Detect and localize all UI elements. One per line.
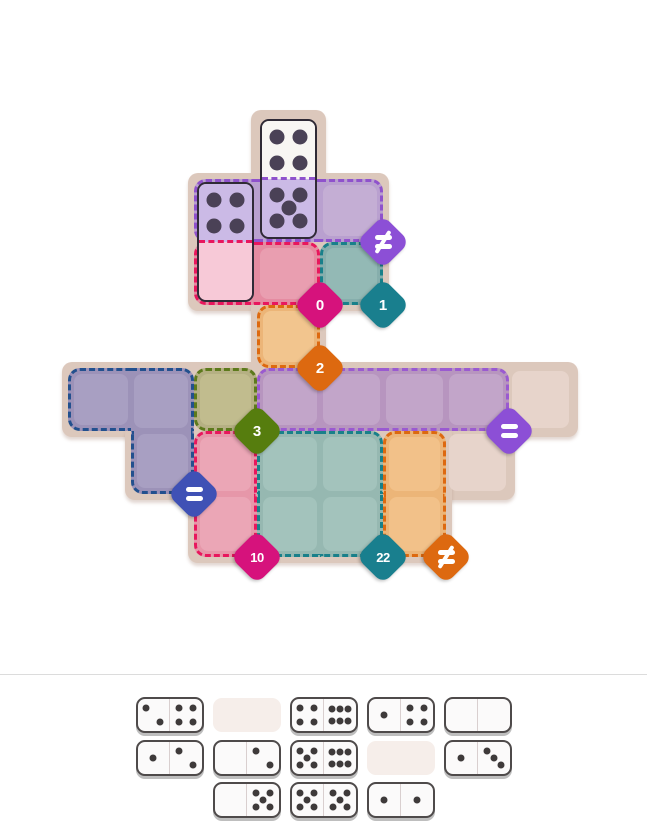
tray-domino-half: [446, 742, 479, 774]
region-purple-band-cell[interactable]: [383, 368, 446, 431]
placed-domino-half: [262, 121, 315, 179]
placed-domino-half: [199, 184, 252, 242]
pip-dot: [252, 804, 259, 811]
constraint-badge-label: [490, 412, 528, 450]
pip-dot: [420, 704, 427, 711]
pip-dot: [252, 747, 259, 754]
tray-domino-half: [292, 742, 325, 774]
game-page: 01231022: [0, 0, 647, 830]
pip-dot: [304, 755, 311, 762]
pip-dot: [293, 130, 308, 145]
pip-dot: [406, 704, 413, 711]
pip-dot: [206, 218, 221, 233]
pip-dot: [269, 155, 284, 170]
tray-domino-half: [324, 742, 356, 774]
pip-dot: [328, 705, 335, 712]
pip-dot: [329, 789, 336, 796]
region-cell-surface: [386, 374, 443, 425]
not-equal-slash-icon: [374, 230, 391, 254]
tray-domino-1-1[interactable]: [367, 782, 435, 818]
pip-dot: [281, 201, 296, 216]
pip-dot: [230, 218, 245, 233]
tray-domino-half: [170, 699, 202, 731]
tray-domino-half: [324, 784, 356, 816]
equals-bar: [501, 433, 518, 438]
pip-dot: [297, 704, 304, 711]
tray-domino-half: [369, 784, 402, 816]
tray-domino-half: [170, 742, 202, 774]
pip-dot: [311, 719, 318, 726]
pip-dot: [420, 719, 427, 726]
equals-bar: [186, 487, 203, 492]
pip-dot: [490, 755, 497, 762]
tray-domino-half: [247, 742, 279, 774]
pip-dot: [497, 762, 504, 769]
constraint-badge-label: 10: [238, 538, 276, 576]
constraint-badge-10: 10: [230, 530, 284, 584]
pip-dot: [406, 719, 413, 726]
pip-dot: [269, 188, 284, 203]
region-cell-surface: [389, 437, 440, 491]
pip-dot: [293, 155, 308, 170]
pip-dot: [293, 213, 308, 228]
pip-dot: [269, 130, 284, 145]
tray-domino-half: [478, 699, 510, 731]
tray-domino-half: [401, 699, 433, 731]
pip-dot: [150, 755, 157, 762]
pip-dot: [269, 213, 284, 228]
pip-dot: [328, 761, 335, 768]
tray-domino-half: [215, 742, 248, 774]
equals-bar: [501, 424, 518, 429]
constraint-badge-22: 22: [356, 530, 410, 584]
placed-domino-half: [262, 179, 315, 237]
tray-domino-half: [215, 784, 248, 816]
placed-domino[interactable]: [260, 119, 317, 239]
pip-dot: [483, 747, 490, 754]
pip-dot: [297, 804, 304, 811]
tray-domino-5-6[interactable]: [290, 740, 358, 776]
pip-dot: [266, 762, 273, 769]
constraint-badge-label: [175, 475, 213, 513]
tray-slot-empty: [367, 741, 435, 775]
constraint-badge-label: 22: [364, 538, 402, 576]
tray-domino-half: [478, 742, 510, 774]
pip-dot: [336, 761, 343, 768]
pip-dot: [343, 804, 350, 811]
pip-dot: [336, 748, 343, 755]
placed-domino[interactable]: [197, 182, 254, 302]
tray-domino-half: [138, 699, 171, 731]
constraint-badge-label: [427, 538, 465, 576]
tray-row: [136, 697, 512, 733]
pip-dot: [343, 789, 350, 796]
constraint-badge-label: 3: [238, 412, 276, 450]
pip-dot: [143, 704, 150, 711]
tray-separator-line: [0, 674, 647, 675]
tray-domino-half: [446, 699, 479, 731]
not-equal-slash-icon: [437, 545, 454, 569]
tray-domino-1-3[interactable]: [444, 740, 512, 776]
pip-dot: [189, 762, 196, 769]
pip-dot: [381, 797, 388, 804]
tray-domino-4-6[interactable]: [290, 697, 358, 733]
tray-domino-half: [292, 699, 325, 731]
pip-dot: [336, 705, 343, 712]
region-cell-surface: [134, 374, 188, 428]
equals-bar: [186, 496, 203, 501]
constraint-badge-eq: [167, 467, 221, 521]
pip-dot: [344, 761, 351, 768]
constraint-badge-label: 1: [364, 286, 402, 324]
tray-domino-0-0[interactable]: [444, 697, 512, 733]
tray-domino-half: [138, 742, 171, 774]
pip-dot: [328, 748, 335, 755]
tray-domino-1-4[interactable]: [367, 697, 435, 733]
pip-dot: [175, 747, 182, 754]
pip-dot: [381, 712, 388, 719]
pip-dot: [293, 188, 308, 203]
pip-dot: [297, 789, 304, 796]
region-navy-cell[interactable]: [131, 368, 194, 431]
pip-dot: [175, 704, 182, 711]
pip-dot: [344, 748, 351, 755]
tray-domino-0-5[interactable]: [213, 782, 281, 818]
region-boundary-dash: [262, 177, 315, 180]
tray-domino-half: [401, 784, 433, 816]
tray-domino-0-2[interactable]: [213, 740, 281, 776]
pip-dot: [304, 797, 311, 804]
pip-dot: [189, 719, 196, 726]
constraint-badge-1: 1: [356, 278, 410, 332]
tray-domino-half: [247, 784, 279, 816]
constraint-badge-label: 2: [301, 349, 339, 387]
pip-dot: [344, 705, 351, 712]
region-cell-surface: [323, 437, 377, 491]
pip-dot: [206, 193, 221, 208]
region-orange-low-cell[interactable]: [383, 431, 446, 494]
pip-dot: [311, 704, 318, 711]
constraint-badge-label: 0: [301, 286, 339, 324]
pip-dot: [230, 193, 245, 208]
pip-dot: [336, 718, 343, 725]
pip-dot: [259, 797, 266, 804]
pip-dot: [344, 718, 351, 725]
pip-dot: [266, 804, 273, 811]
constraint-badge-label: [364, 223, 402, 261]
tray-domino-half: [324, 699, 356, 731]
pip-dot: [175, 719, 182, 726]
tray-domino-5-5[interactable]: [290, 782, 358, 818]
tray-domino-half: [292, 784, 325, 816]
pip-dot: [311, 762, 318, 769]
pip-dot: [413, 797, 420, 804]
tray-domino-half: [369, 699, 402, 731]
pip-dot: [329, 804, 336, 811]
region-navy-cell[interactable]: [68, 368, 131, 431]
tray-slot-empty: [213, 698, 281, 732]
constraint-badge-eq: [482, 404, 536, 458]
pip-dot: [266, 789, 273, 796]
pip-dot: [336, 797, 343, 804]
pip-dot: [458, 755, 465, 762]
tray-domino-2-4[interactable]: [136, 697, 204, 733]
tray-row: [136, 740, 512, 776]
pip-dot: [297, 747, 304, 754]
region-teal-low-cell[interactable]: [320, 431, 383, 494]
pip-dot: [311, 804, 318, 811]
constraint-badge-3: 3: [230, 404, 284, 458]
pip-dot: [157, 719, 164, 726]
pip-dot: [252, 789, 259, 796]
region-boundary-dash: [199, 240, 252, 243]
constraint-badge-neq: [356, 215, 410, 269]
pip-dot: [311, 747, 318, 754]
pip-dot: [311, 789, 318, 796]
constraint-badge-2: 2: [293, 341, 347, 395]
constraint-badge-0: 0: [293, 278, 347, 332]
pip-dot: [297, 719, 304, 726]
constraint-badge-neq: [419, 530, 473, 584]
tray-domino-1-2[interactable]: [136, 740, 204, 776]
pip-dot: [328, 718, 335, 725]
pip-dot: [189, 704, 196, 711]
region-cell-surface: [74, 374, 128, 425]
placed-domino-half: [199, 242, 252, 300]
pip-dot: [297, 762, 304, 769]
tray-row: [213, 782, 435, 818]
